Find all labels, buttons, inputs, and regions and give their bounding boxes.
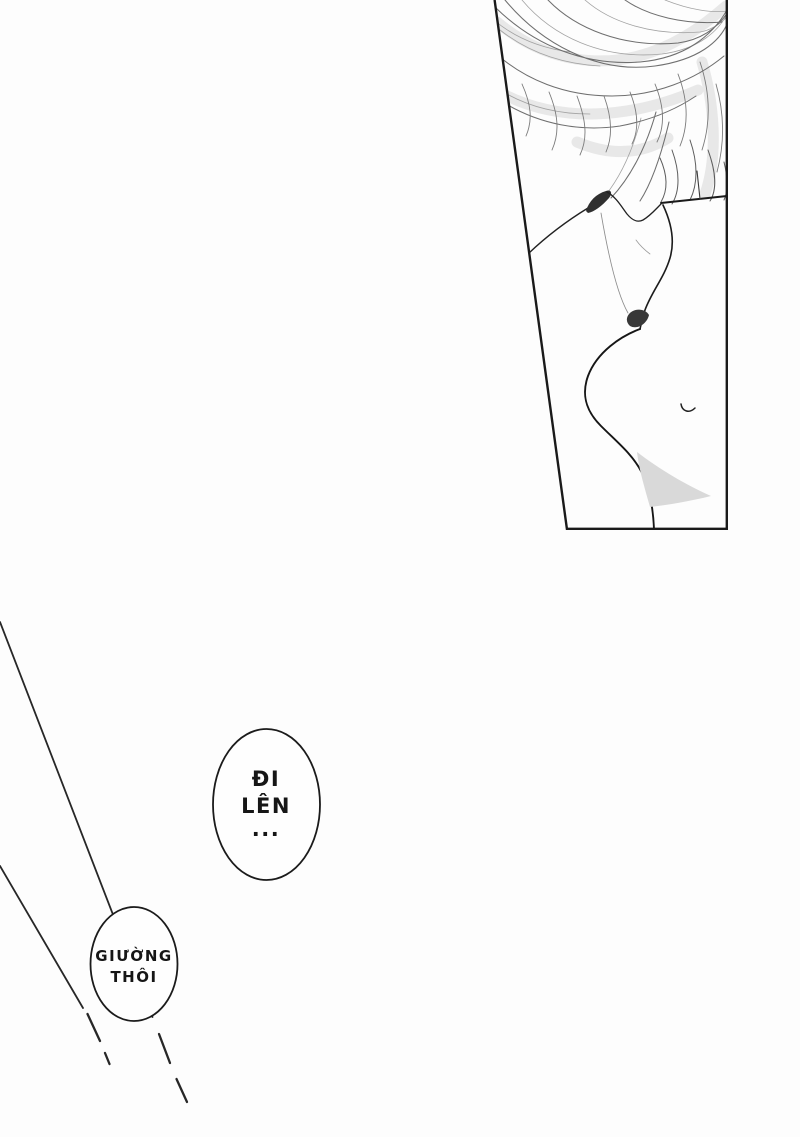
shoulder-line bbox=[661, 196, 727, 203]
navel-mark bbox=[681, 404, 695, 411]
bubble-text-line: ... bbox=[252, 817, 280, 841]
bubble-text-line: THÔI bbox=[110, 967, 157, 986]
speech-bubble-giuong-thoi: GIƯỜNG THÔI bbox=[91, 907, 178, 1021]
jaw-line bbox=[529, 208, 588, 253]
panel-border bbox=[495, 0, 727, 529]
chin-shape bbox=[586, 190, 611, 213]
bubble-text-line: LÊN bbox=[241, 793, 291, 818]
speech-bubble-di-len: ĐI LÊN ... bbox=[213, 729, 320, 880]
neck-back-line bbox=[640, 205, 672, 329]
speed-line-lower-dashes bbox=[88, 1014, 110, 1064]
collar-tick bbox=[697, 171, 700, 199]
neck-front-line bbox=[601, 213, 628, 313]
speed-line-lower bbox=[0, 866, 83, 1008]
chest-contour bbox=[585, 329, 654, 529]
bubble-text-line: GIƯỜNG bbox=[95, 946, 172, 965]
chin-curve bbox=[607, 192, 661, 221]
lips-shape bbox=[627, 310, 649, 328]
panel-art bbox=[494, 0, 728, 529]
manga-page: ĐI LÊN ... GIƯỜNG THÔI bbox=[0, 0, 800, 1137]
speed-line-upper-dashes bbox=[159, 1034, 187, 1102]
screentone-shadow bbox=[637, 452, 711, 507]
neck-crease bbox=[636, 240, 650, 254]
bubble-text-line: ĐI bbox=[252, 767, 280, 791]
hair-shading bbox=[497, 6, 726, 194]
manga-artwork: ĐI LÊN ... GIƯỜNG THÔI bbox=[0, 0, 800, 1137]
speed-lines bbox=[0, 622, 187, 1102]
